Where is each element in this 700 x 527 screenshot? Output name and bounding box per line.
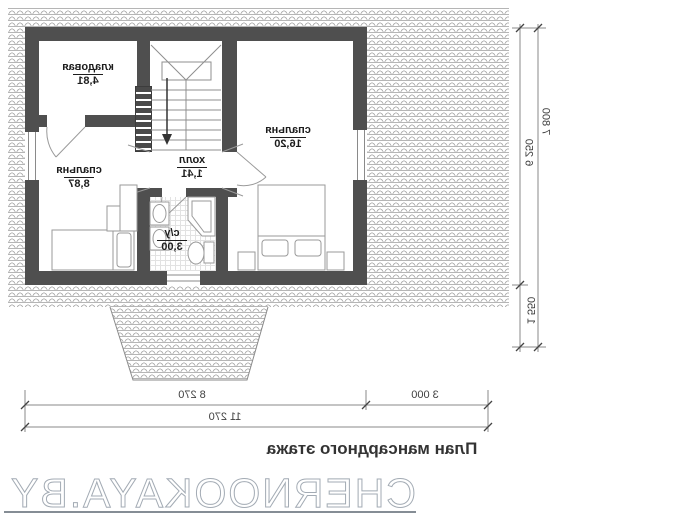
floor-plan-canvas: кладовая 4,81 спальня 8,87 холл 1,41 с/у… [0, 0, 700, 527]
porch-roof-outline [110, 307, 268, 380]
dim-total-depth: 7 800 [539, 92, 552, 152]
room-area: 16,20 [270, 137, 306, 151]
room-name: холл [179, 154, 205, 167]
room-label-bathroom: с/у 3,00 [137, 227, 207, 254]
room-name: с/у [164, 227, 179, 240]
room-label-hall: холл 1,41 [157, 154, 227, 181]
dim-building-width: 8 270 [162, 389, 222, 402]
watermark-text: CHERNOOKAYA.BY [4, 470, 416, 517]
room-area: 3,00 [157, 240, 186, 254]
dim-building-depth: 6 250 [522, 123, 535, 183]
room-name: спальня [56, 164, 102, 177]
bed-single-and-desk [52, 185, 137, 270]
bed-double [238, 185, 344, 270]
room-name: кладовая [62, 61, 114, 74]
dim-porch-depth: 1 550 [524, 281, 537, 341]
stair-down-arrow [162, 78, 172, 145]
room-area: 4,81 [73, 74, 102, 88]
drawing-title: План мансардного этажа [252, 439, 492, 459]
room-label-storage: кладовая 4,81 [53, 61, 123, 88]
dim-side-offset: 3 000 [395, 389, 455, 402]
dim-total-width: 11 270 [195, 411, 255, 424]
watermark-underline [4, 511, 416, 513]
room-label-bedroom-small: спальня 8,87 [44, 164, 114, 191]
room-area: 8,87 [64, 177, 93, 191]
room-area: 1,41 [177, 167, 206, 181]
staircase [151, 45, 221, 150]
room-name: спальня [265, 124, 311, 137]
room-label-bedroom-large: спальня 16,20 [253, 124, 323, 151]
